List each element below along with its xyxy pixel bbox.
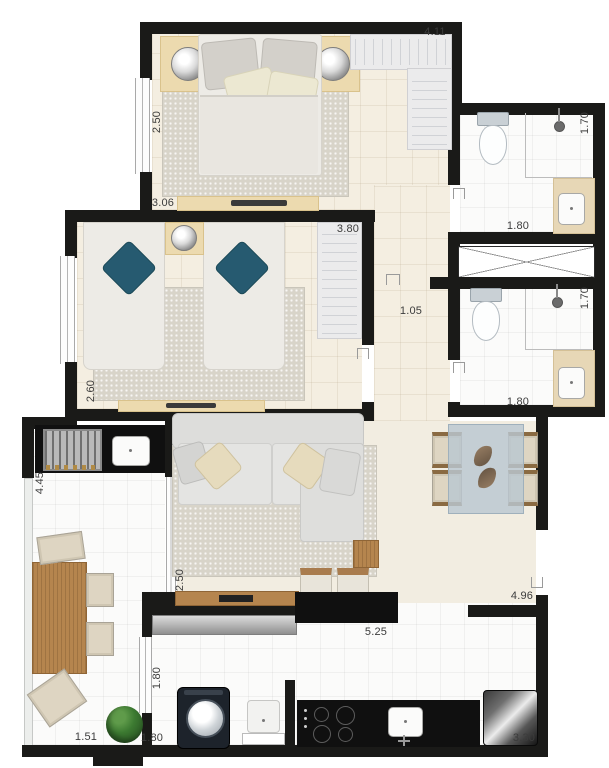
- dimension-label: 3.30: [507, 732, 541, 744]
- wardrobe: [407, 68, 452, 150]
- laundry-counter: [152, 615, 297, 635]
- outdoor-wood-table: [32, 562, 87, 674]
- duct-shaft: [458, 246, 595, 278]
- washing-machine-icon: [177, 687, 230, 749]
- tv-icon: [166, 403, 216, 408]
- wall: [285, 680, 295, 750]
- window: [60, 256, 75, 364]
- dimension-label: 1.80: [151, 661, 163, 695]
- outdoor-chair: [86, 622, 114, 656]
- dimension-label: 3.06: [146, 197, 180, 209]
- wall: [93, 753, 143, 766]
- toilet-icon: [477, 112, 509, 126]
- floor-plan: 4.11 2.50 3.06 3.80 2.60 1.05 1.70 1.80 …: [0, 0, 609, 768]
- grill-knobs: [46, 465, 96, 470]
- side-table: [353, 540, 379, 568]
- sofa-pillow: [318, 447, 361, 497]
- wall: [448, 289, 460, 360]
- tv-rack: [175, 591, 299, 606]
- table-centerpiece: [472, 443, 493, 468]
- window: [135, 78, 150, 174]
- double-bed: [198, 34, 322, 176]
- bed-pillow: [214, 240, 271, 297]
- dimension-label: 2.50: [174, 563, 186, 597]
- bed-pillow: [101, 240, 158, 297]
- wall: [142, 604, 152, 637]
- hallway: [374, 185, 450, 421]
- table-lamp-icon: [171, 225, 197, 251]
- floor-mat: [242, 733, 285, 745]
- bedroom-dresser: [177, 196, 319, 211]
- shower-head-icon: [552, 297, 563, 308]
- dimension-label: 2.50: [151, 105, 163, 139]
- glass-dining-table: [448, 424, 524, 514]
- dimension-label: 4.45: [34, 466, 46, 500]
- shower-arm: [556, 284, 558, 298]
- single-bed: [203, 222, 285, 370]
- door-swing-icon: [453, 362, 465, 373]
- outdoor-sink-icon: [112, 436, 150, 466]
- dimension-label: 1.70: [579, 106, 591, 140]
- bedroom-dresser: [118, 400, 265, 412]
- cooktop-icon: [302, 703, 364, 743]
- faucet-icon: [398, 740, 410, 742]
- kitchen-island: [295, 592, 398, 623]
- door-swing-icon: [386, 274, 400, 285]
- shower-arm: [558, 108, 560, 122]
- door-swing-icon: [531, 577, 543, 588]
- single-bed: [83, 222, 165, 370]
- duvet: [200, 95, 318, 174]
- dimension-label: 1.70: [579, 281, 591, 315]
- wardrobe: [350, 34, 452, 70]
- wall: [468, 605, 537, 617]
- wall: [22, 417, 34, 478]
- laundry-tub: [247, 700, 280, 733]
- wall: [140, 22, 152, 80]
- outdoor-chair: [86, 573, 114, 607]
- dimension-label: 1.80: [501, 220, 535, 232]
- sink-icon: [558, 193, 585, 225]
- dimension-label: 4.96: [505, 590, 539, 602]
- dimension-label: 3.80: [331, 223, 365, 235]
- dimension-label: 1.05: [394, 305, 428, 317]
- dimension-label: 1.80: [135, 732, 169, 744]
- toilet-icon: [470, 288, 502, 302]
- wardrobe: [317, 222, 362, 339]
- dimension-label: 1.51: [69, 731, 103, 743]
- wall: [140, 22, 462, 34]
- wall: [65, 210, 77, 258]
- tv-icon: [219, 595, 253, 602]
- wall: [430, 277, 593, 289]
- wall: [65, 210, 375, 222]
- kitchen-counter: [297, 700, 480, 747]
- dimension-label: 4.11: [418, 26, 452, 38]
- sink-icon: [558, 367, 585, 399]
- table-centerpiece: [476, 465, 497, 490]
- toilet-bowl: [472, 301, 500, 341]
- wall: [362, 222, 374, 345]
- door-swing-icon: [357, 348, 369, 359]
- dimension-label: 5.25: [359, 626, 393, 638]
- kitchen-sink-icon: [388, 707, 423, 737]
- dimension-label: 2.60: [85, 374, 97, 408]
- shower-head-icon: [554, 121, 565, 132]
- toilet-bowl: [479, 125, 507, 165]
- dimension-label: 1.80: [501, 396, 535, 408]
- door-swing-icon: [453, 188, 465, 199]
- tv-icon: [231, 200, 287, 206]
